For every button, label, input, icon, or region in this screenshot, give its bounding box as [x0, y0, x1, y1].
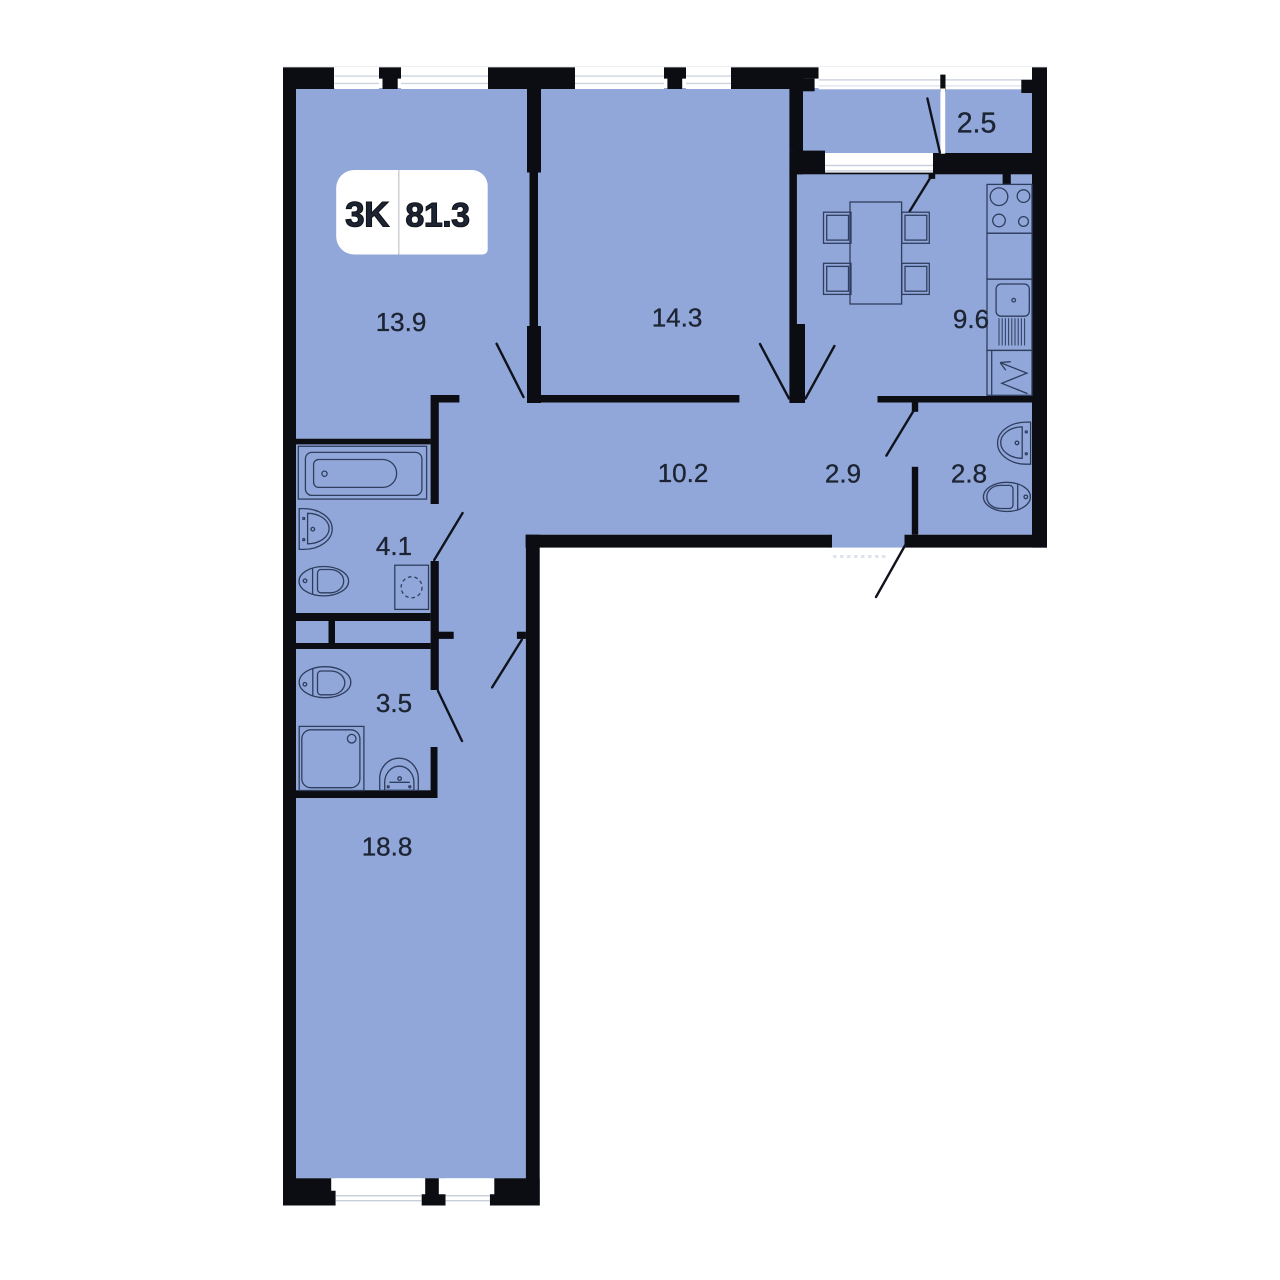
svg-text:3.5: 3.5 — [376, 688, 412, 718]
svg-text:9.6: 9.6 — [953, 304, 989, 334]
svg-text:2.5: 2.5 — [957, 108, 997, 140]
svg-text:4.1: 4.1 — [376, 531, 412, 561]
svg-text:3K: 3K — [345, 196, 389, 235]
svg-text:14.3: 14.3 — [652, 303, 703, 333]
svg-text:2.9: 2.9 — [825, 459, 861, 489]
svg-text:81.3: 81.3 — [405, 197, 469, 235]
svg-text:10.2: 10.2 — [658, 458, 709, 488]
svg-text:18.8: 18.8 — [362, 831, 413, 861]
svg-text:2.8: 2.8 — [951, 459, 987, 489]
svg-text:13.9: 13.9 — [376, 307, 427, 337]
